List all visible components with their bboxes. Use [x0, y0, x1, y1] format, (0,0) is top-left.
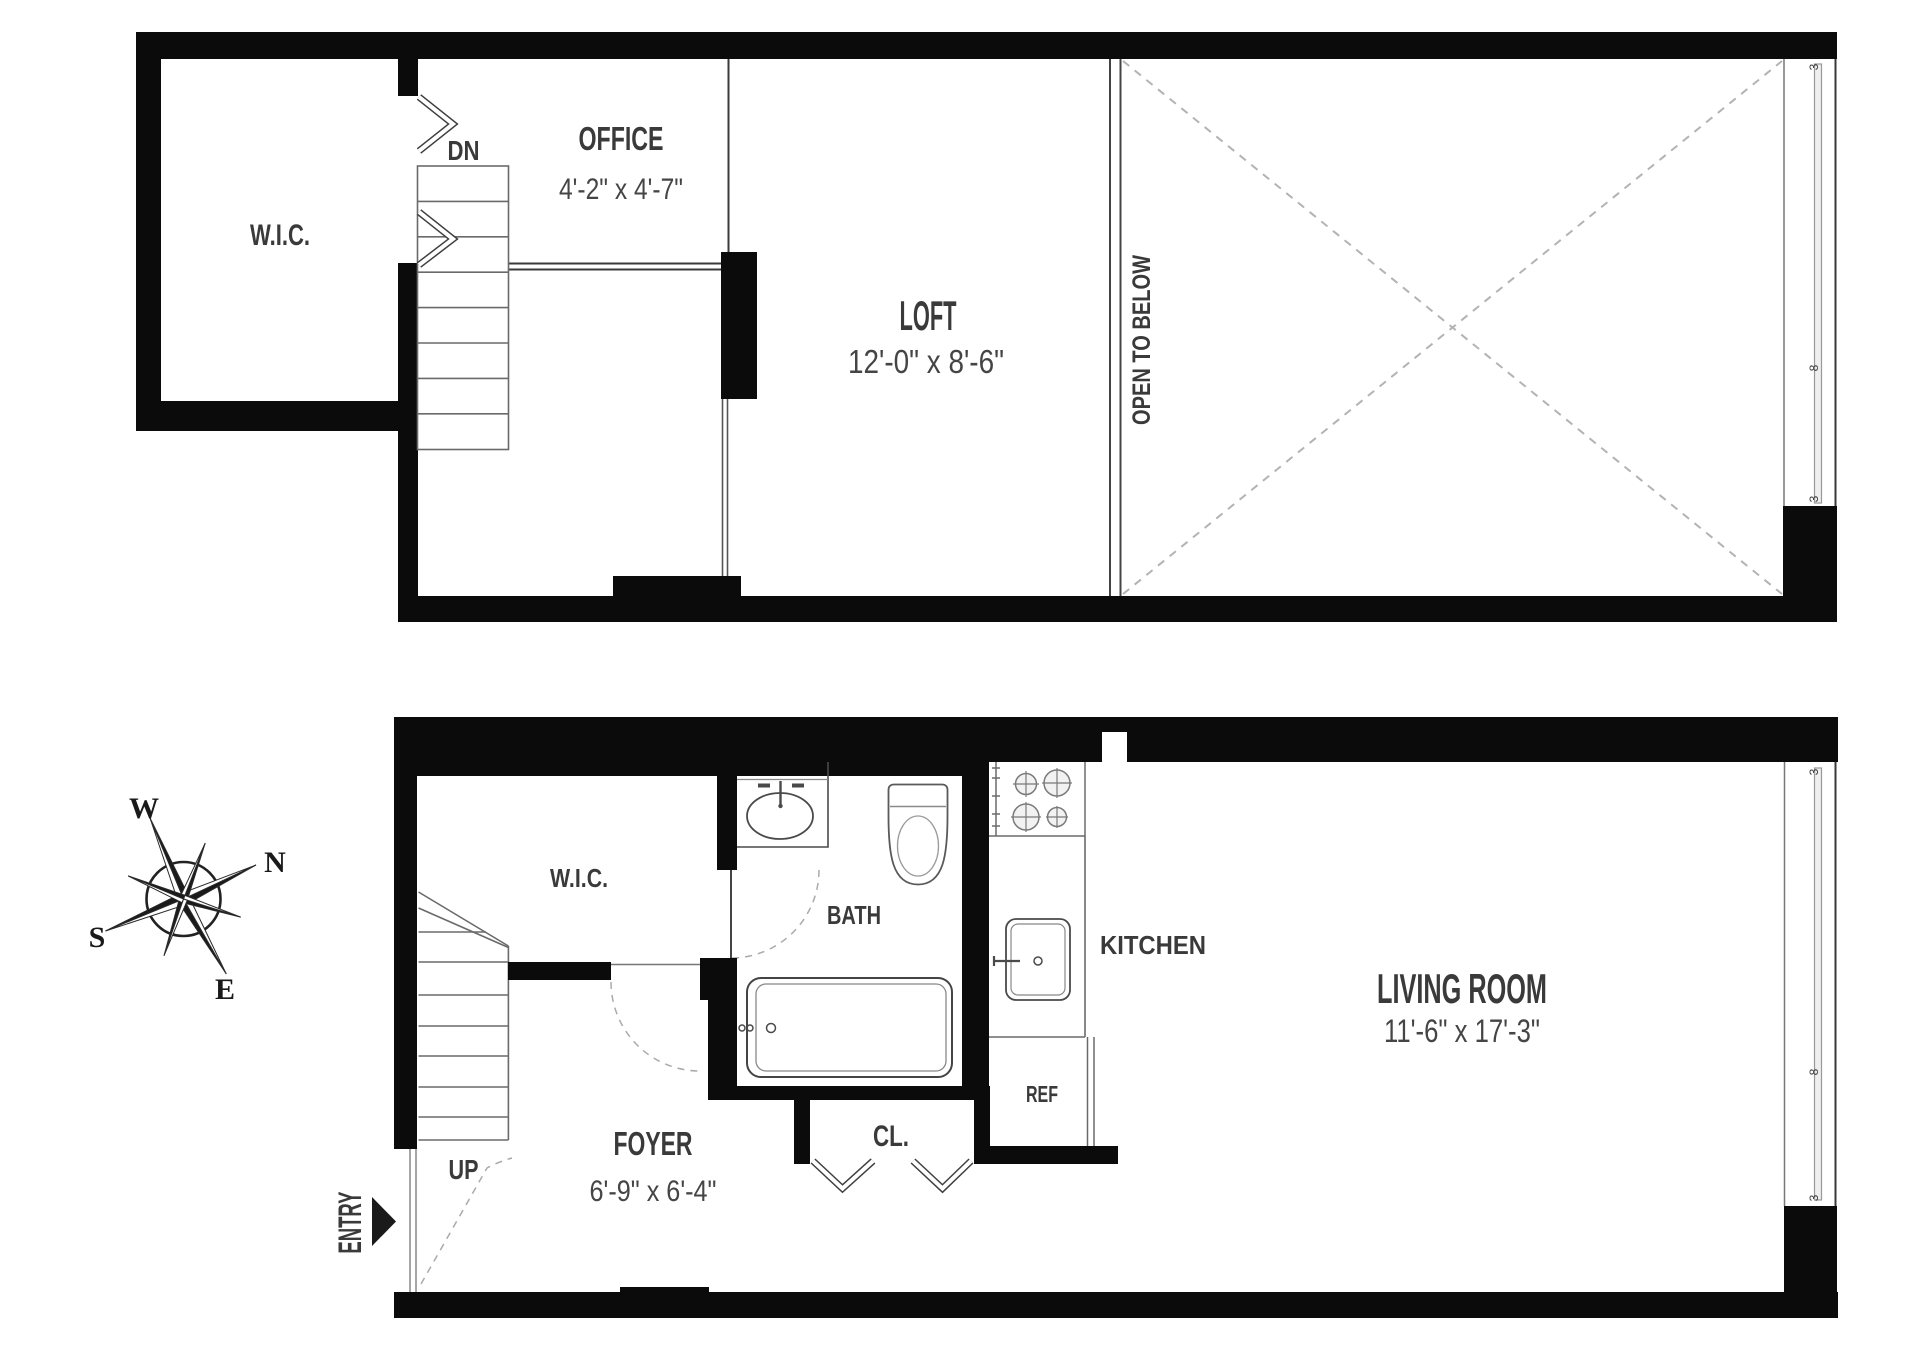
- svg-text:8: 8: [1807, 364, 1821, 371]
- svg-text:CL.: CL.: [873, 1120, 909, 1153]
- svg-text:3: 3: [1807, 1194, 1821, 1201]
- svg-text:BATH: BATH: [827, 900, 881, 930]
- svg-text:W: W: [129, 792, 159, 825]
- svg-text:W.I.C.: W.I.C.: [250, 219, 310, 252]
- svg-text:3: 3: [1807, 495, 1821, 502]
- svg-text:8: 8: [1807, 1068, 1821, 1075]
- svg-text:3: 3: [1807, 63, 1821, 70]
- svg-text:UP: UP: [449, 1154, 479, 1185]
- svg-text:3: 3: [1807, 768, 1821, 775]
- svg-text:E: E: [215, 973, 235, 1006]
- svg-text:4'-2" x 4'-7": 4'-2" x 4'-7": [559, 173, 683, 206]
- svg-text:N: N: [264, 846, 286, 879]
- svg-text:FOYER: FOYER: [614, 1125, 693, 1162]
- svg-text:6'-9" x 6'-4": 6'-9" x 6'-4": [590, 1175, 717, 1208]
- svg-text:LIVING ROOM: LIVING ROOM: [1377, 965, 1547, 1012]
- svg-text:DN: DN: [448, 135, 480, 166]
- svg-text:REF: REF: [1026, 1081, 1058, 1107]
- svg-text:11'-6" x 17'-3": 11'-6" x 17'-3": [1384, 1013, 1540, 1049]
- svg-text:12'-0" x 8'-6": 12'-0" x 8'-6": [848, 343, 1004, 380]
- svg-text:S: S: [89, 921, 106, 954]
- svg-text:OPEN TO BELOW: OPEN TO BELOW: [1128, 255, 1156, 425]
- svg-text:OFFICE: OFFICE: [579, 120, 664, 157]
- svg-text:LOFT: LOFT: [900, 292, 957, 339]
- svg-text:KITCHEN: KITCHEN: [1100, 930, 1206, 960]
- svg-text:ENTRY: ENTRY: [332, 1192, 368, 1254]
- svg-text:W.I.C.: W.I.C.: [550, 863, 608, 893]
